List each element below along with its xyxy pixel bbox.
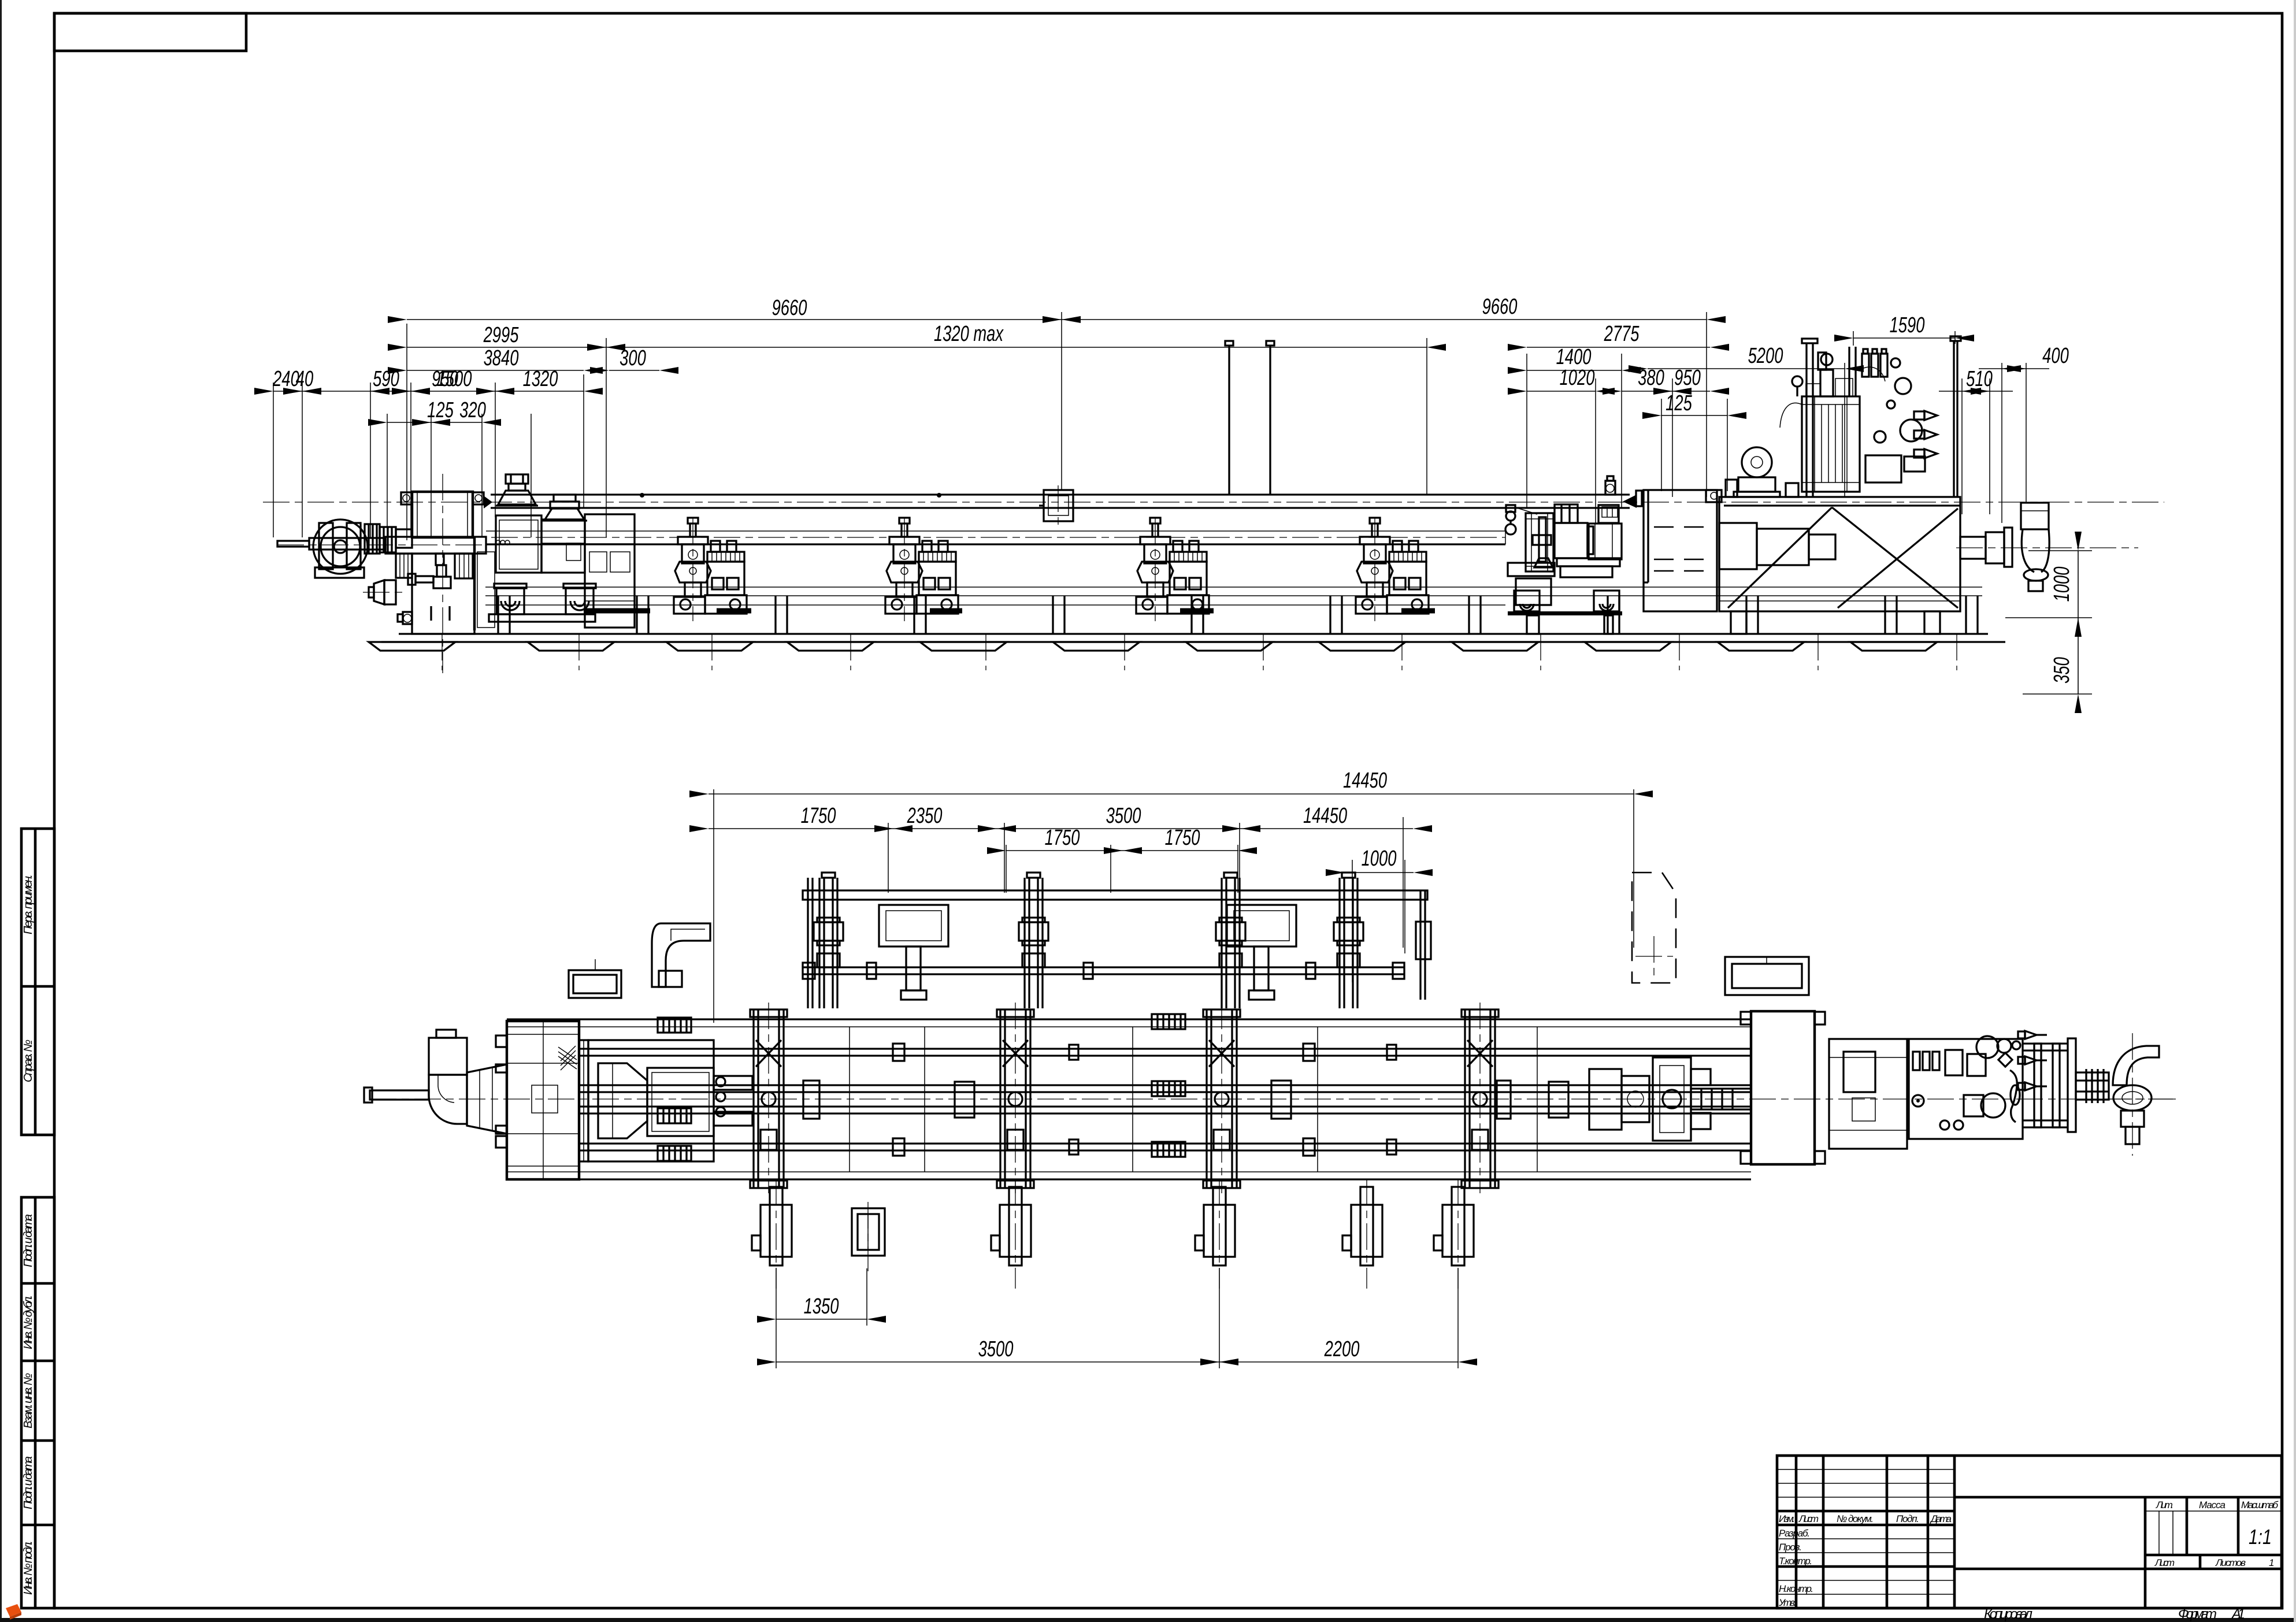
svg-text:Лит.: Лит. (2156, 1499, 2173, 1510)
svg-text:1320: 1320 (523, 367, 558, 391)
svg-text:9660: 9660 (772, 296, 807, 320)
svg-text:Изм.: Изм. (1779, 1513, 1795, 1524)
svg-text:300: 300 (620, 346, 646, 370)
svg-text:Копировал: Копировал (1984, 1606, 2032, 1622)
svg-text:1500: 1500 (437, 367, 472, 391)
svg-text:125: 125 (1666, 391, 1692, 415)
svg-text:Лист: Лист (2154, 1557, 2175, 1568)
svg-text:14450: 14450 (1303, 804, 1348, 828)
svg-text:1:1: 1:1 (2249, 1525, 2272, 1549)
svg-text:1350: 1350 (804, 1294, 839, 1319)
svg-text:1590: 1590 (1890, 313, 1925, 337)
svg-text:380: 380 (1638, 366, 1664, 390)
svg-text:3840: 3840 (484, 346, 519, 370)
svg-text:3500: 3500 (1106, 804, 1141, 828)
svg-text:Лист: Лист (1798, 1513, 1819, 1524)
svg-text:А1: А1 (2231, 1606, 2245, 1622)
svg-text:1750: 1750 (1045, 826, 1080, 850)
svg-text:Пров.: Пров. (1779, 1542, 1802, 1553)
svg-text:400: 400 (2042, 344, 2069, 368)
svg-text:2775: 2775 (1604, 322, 1640, 346)
svg-text:№ докум.: № докум. (1837, 1513, 1874, 1524)
svg-text:1020: 1020 (1560, 366, 1595, 390)
svg-text:350: 350 (2050, 657, 2074, 684)
svg-text:1750: 1750 (1165, 826, 1200, 850)
svg-text:2200: 2200 (1324, 1337, 1360, 1361)
svg-text:Листов: Листов (2215, 1557, 2246, 1568)
svg-text:320: 320 (459, 398, 486, 422)
svg-text:2995: 2995 (483, 323, 519, 347)
svg-text:Инв. № подл.: Инв. № подл. (22, 1541, 35, 1595)
svg-text:590: 590 (373, 367, 399, 391)
svg-text:1: 1 (2269, 1557, 2274, 1568)
svg-text:1320 max: 1320 max (934, 322, 1004, 346)
svg-text:950: 950 (1674, 366, 1701, 390)
svg-text:1000: 1000 (1362, 847, 1397, 871)
svg-text:14450: 14450 (1343, 769, 1388, 793)
svg-text:Масса: Масса (2199, 1499, 2225, 1510)
svg-text:Масштаб: Масштаб (2241, 1499, 2279, 1510)
svg-text:1750: 1750 (801, 804, 836, 828)
svg-text:Дата: Дата (1930, 1513, 1952, 1524)
svg-text:Н.контр.: Н.контр. (1779, 1583, 1813, 1594)
svg-text:Подп. и дата: Подп. и дата (22, 1456, 35, 1509)
svg-text:2350: 2350 (907, 804, 943, 828)
svg-text:510: 510 (1966, 367, 1993, 391)
svg-text:Т.контр.: Т.контр. (1779, 1556, 1812, 1567)
svg-text:3500: 3500 (978, 1337, 1014, 1361)
svg-text:Разраб.: Разраб. (1779, 1528, 1810, 1539)
svg-text:Инв. № дубл.: Инв. № дубл. (22, 1295, 35, 1349)
svg-text:Подп. и дата: Подп. и дата (22, 1214, 35, 1267)
svg-text:Перв. примен.: Перв. примен. (22, 874, 35, 934)
svg-text:9660: 9660 (1482, 295, 1518, 319)
svg-text:Утв.: Утв. (1778, 1597, 1796, 1608)
svg-text:1000: 1000 (2050, 566, 2074, 602)
svg-text:Взам. инв. №: Взам. инв. № (22, 1373, 35, 1428)
svg-text:5200: 5200 (1748, 344, 1783, 368)
svg-text:Справ. №: Справ. № (22, 1040, 35, 1082)
svg-text:Подп.: Подп. (1896, 1513, 1919, 1524)
svg-text:125: 125 (427, 398, 454, 422)
svg-text:40: 40 (296, 367, 314, 391)
svg-text:Формат: Формат (2178, 1606, 2217, 1622)
